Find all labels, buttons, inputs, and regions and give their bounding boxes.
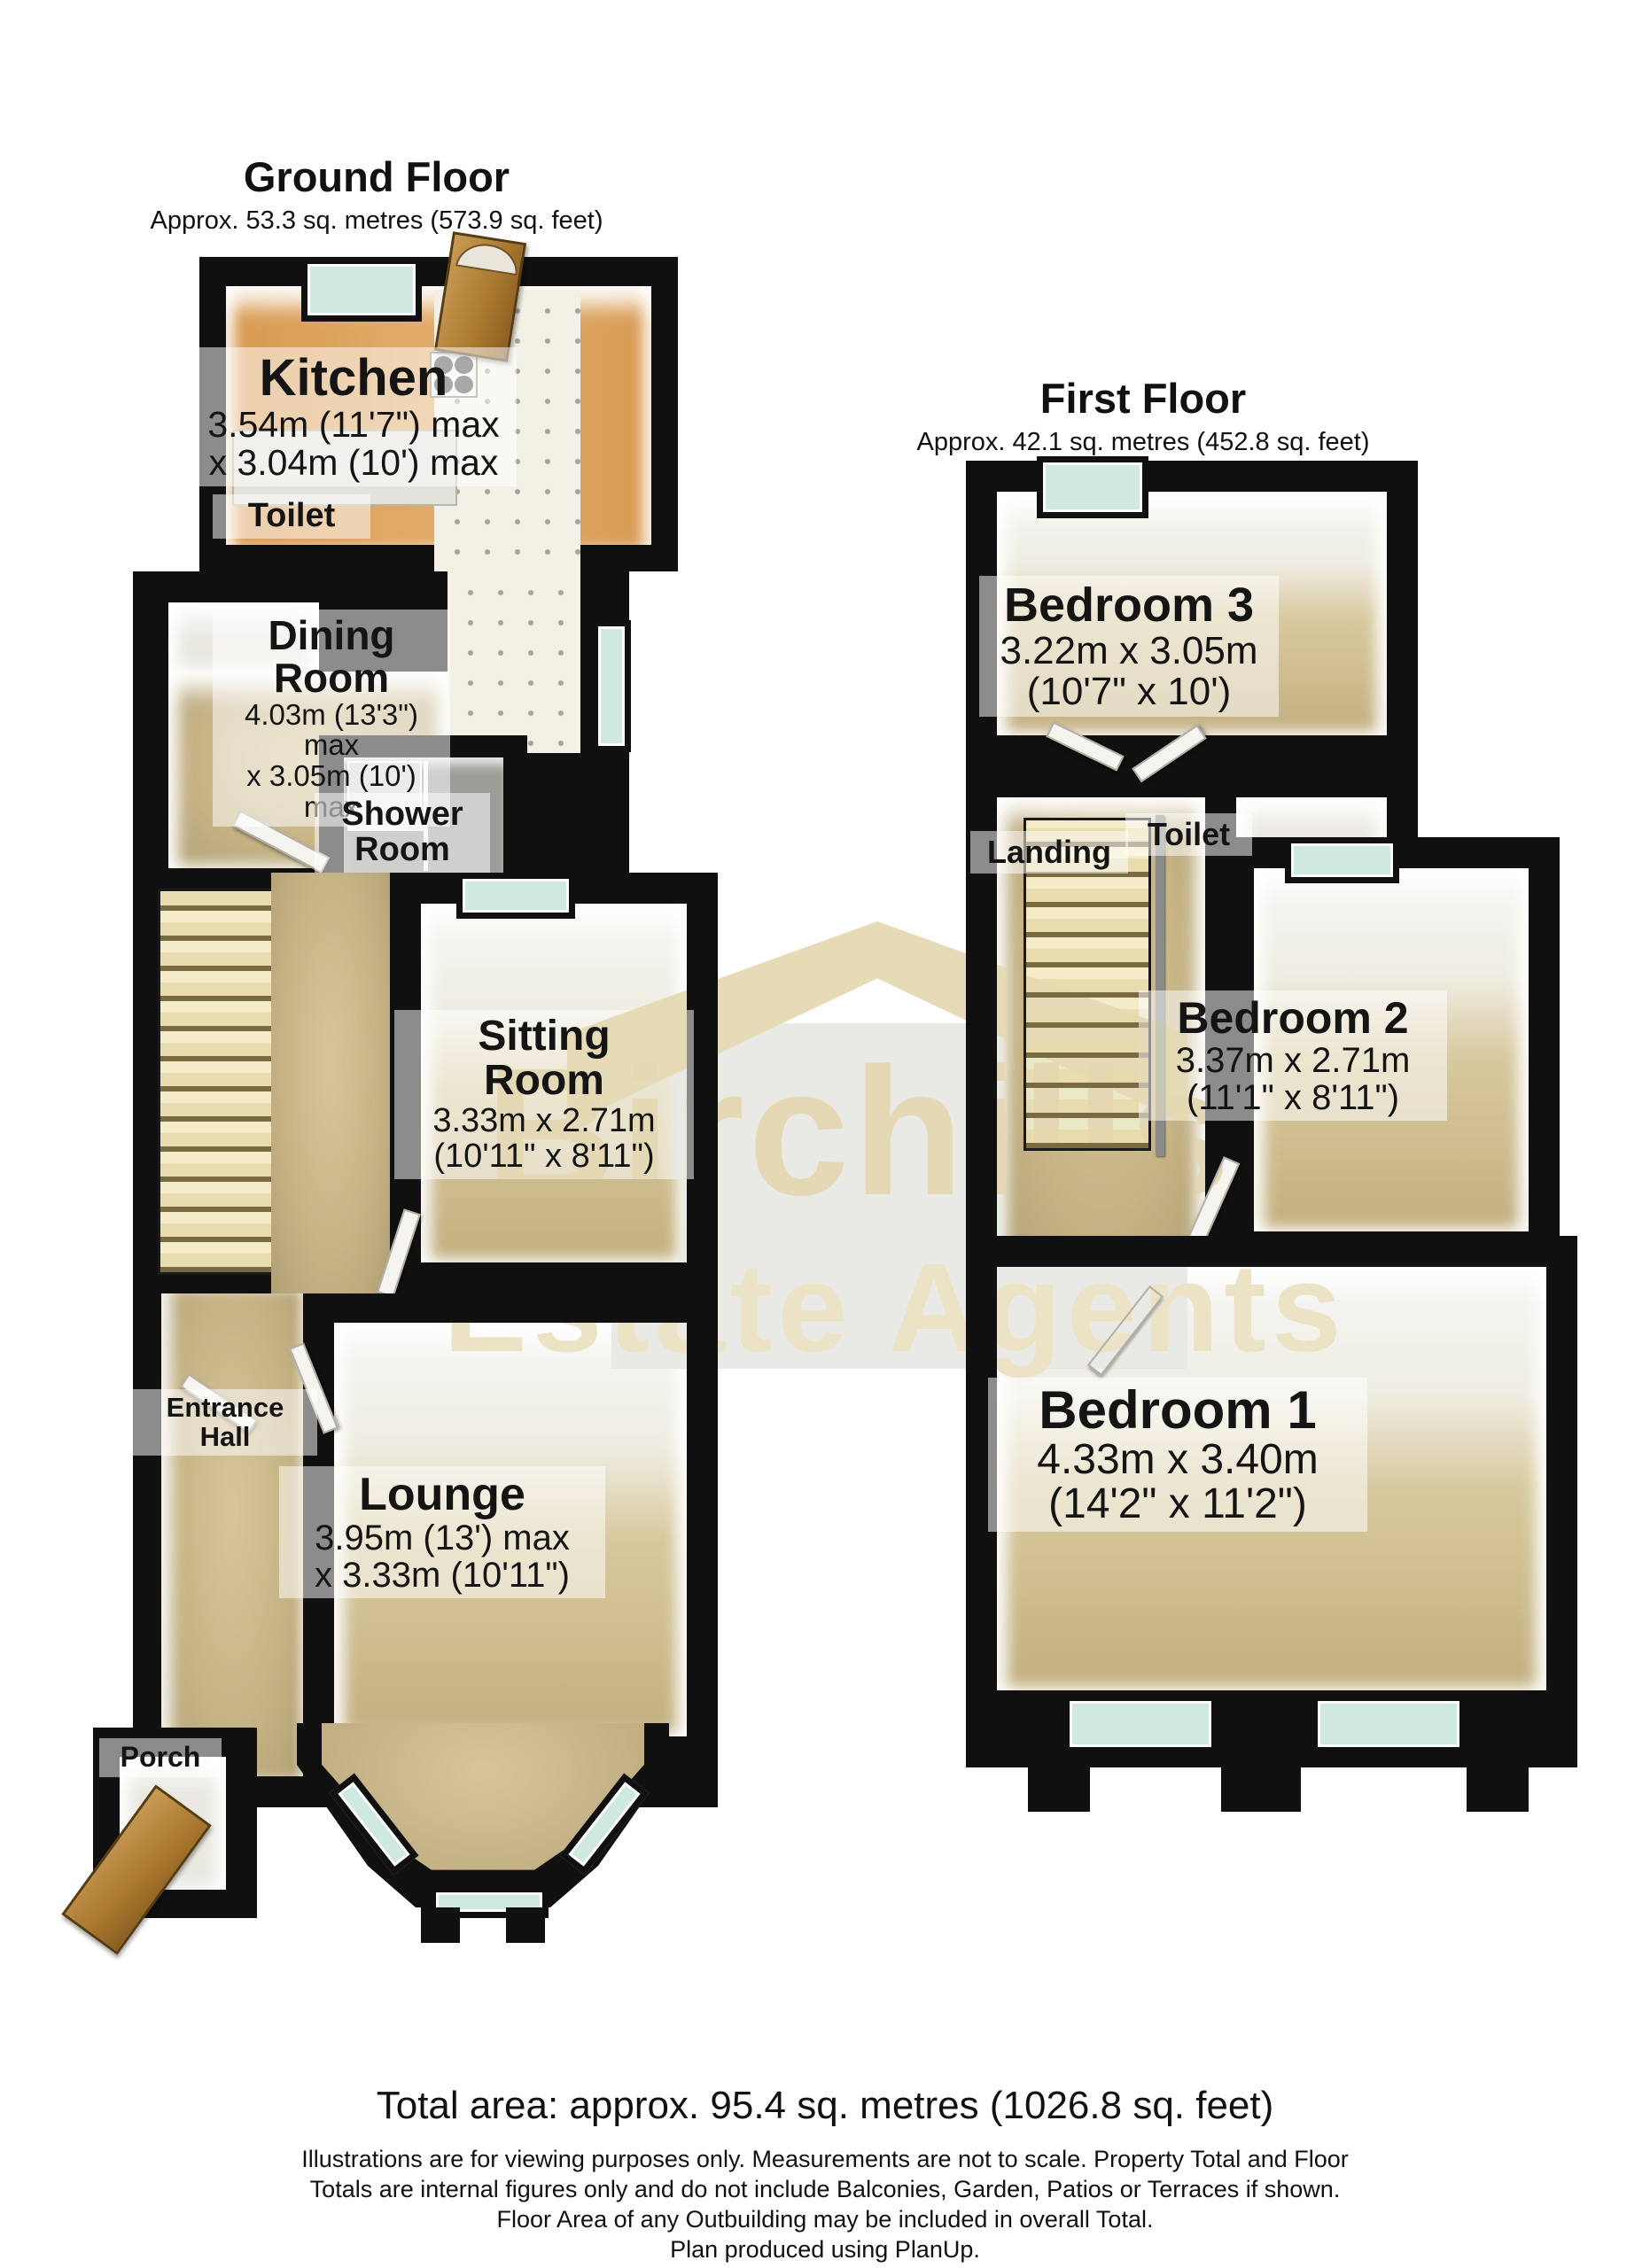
bay-frame-stub	[421, 1907, 460, 1943]
disclaimer-line-4: Plan produced using PlanUp.	[205, 2234, 1445, 2264]
disclaimer-text: Illustrations are for viewing purposes o…	[205, 2144, 1445, 2264]
bedroom2-dim1: 3.37m x 2.71m	[1142, 1042, 1444, 1079]
ground-floor-title: Ground Floor	[66, 152, 687, 201]
kitchen-window	[301, 258, 422, 322]
bedroom3-dim1: 3.22m x 3.05m	[983, 631, 1275, 672]
window-frame-stub	[1467, 1767, 1529, 1812]
hallway-floor	[271, 873, 390, 1298]
bedroom2-label: Bedroom 2 3.37m x 2.71m (11'1" x 8'11")	[1139, 990, 1447, 1121]
bedroom1-dim2: (14'2" x 11'2")	[992, 1482, 1364, 1526]
bay-window	[297, 1723, 669, 1953]
porch-name: Porch	[103, 1743, 218, 1773]
dining-tile-path	[448, 571, 580, 753]
porch-label: Porch	[99, 1738, 222, 1777]
entrance-hall-label: Entrance Hall	[133, 1389, 317, 1456]
staircase	[158, 889, 276, 1275]
disclaimer-line-3: Floor Area of any Outbuilding may be inc…	[205, 2204, 1445, 2234]
toilet-label: Toilet	[213, 494, 370, 539]
bedroom3-name: Bedroom 3	[983, 580, 1275, 631]
lounge-dim2: x 3.33m (10'11")	[283, 1557, 602, 1594]
first-floor-subtitle: Approx. 42.1 sq. metres (452.8 sq. feet)	[833, 428, 1453, 457]
sitting-name-2: Room	[398, 1059, 690, 1103]
sitting-room-label: Sitting Room 3.33m x 2.71m (10'11" x 8'1…	[394, 1010, 694, 1179]
sitting-name-1: Sitting	[398, 1014, 690, 1059]
dining-name-2: Room	[216, 656, 447, 699]
kitchen-name: Kitchen	[194, 352, 513, 406]
shower-room-label: Shower Room	[315, 793, 490, 873]
sitting-room-window	[456, 873, 575, 919]
bedroom1-name: Bedroom 1	[992, 1382, 1364, 1438]
first-floor-title: First Floor	[833, 374, 1453, 423]
bedroom1-label: Bedroom 1 4.33m x 3.40m (14'2" x 11'2")	[988, 1378, 1367, 1532]
floorplan-page: Ground Floor Approx. 53.3 sq. metres (57…	[0, 0, 1650, 2268]
sitting-dim2: (10'11" x 8'11")	[398, 1139, 690, 1175]
kitchen-dim2: x 3.04m (10') max	[194, 444, 513, 482]
bedroom3-window	[1037, 456, 1148, 518]
ground-floor-subtitle: Approx. 53.3 sq. metres (573.9 sq. feet)	[66, 206, 687, 236]
shower-name-2: Room	[318, 833, 486, 868]
window-frame-stub	[1221, 1767, 1301, 1812]
lounge-dim1: 3.95m (13') max	[283, 1519, 602, 1557]
dining-name-1: Dining	[216, 614, 447, 656]
landing-name: Landing	[974, 835, 1125, 869]
dining-glass-door	[592, 620, 631, 752]
lounge-name: Lounge	[283, 1471, 602, 1519]
bedroom1-dim1: 4.33m x 3.40m	[992, 1438, 1364, 1482]
shower-name-1: Shower	[318, 797, 486, 833]
bedroom1-window-right	[1311, 1695, 1466, 1753]
fanlight	[455, 240, 520, 276]
first-floor-header: First Floor Approx. 42.1 sq. metres (452…	[833, 374, 1453, 457]
bedroom2-name: Bedroom 2	[1142, 995, 1444, 1042]
dining-dim1: 4.03m (13'3") max	[216, 700, 447, 761]
toilet-ff-label: Toilet	[1125, 813, 1252, 856]
kitchen-label: Kitchen 3.54m (11'7") max x 3.04m (10') …	[191, 347, 517, 486]
bedroom1-window-left	[1063, 1695, 1218, 1753]
bedroom2-window	[1285, 837, 1399, 883]
disclaimer-line-1: Illustrations are for viewing purposes o…	[205, 2144, 1445, 2174]
toilet-ff-name: Toilet	[1129, 818, 1249, 851]
total-area-text: Total area: approx. 95.4 sq. metres (102…	[160, 2084, 1490, 2128]
disclaimer-line-2: Totals are internal figures only and do …	[205, 2174, 1445, 2204]
window-frame-stub	[1028, 1767, 1090, 1812]
ground-floor-header: Ground Floor Approx. 53.3 sq. metres (57…	[66, 152, 687, 236]
toilet-name: Toilet	[216, 499, 367, 534]
kitchen-dim1: 3.54m (11'7") max	[194, 406, 513, 444]
bedroom3-dim2: (10'7" x 10')	[983, 672, 1275, 712]
bay-frame-stub	[506, 1907, 545, 1943]
entrance-name-2: Hall	[136, 1423, 314, 1452]
bedroom2-dim2: (11'1" x 8'11")	[1142, 1079, 1444, 1116]
lounge-label: Lounge 3.95m (13') max x 3.33m (10'11")	[279, 1466, 605, 1598]
sitting-dim1: 3.33m x 2.71m	[398, 1104, 690, 1139]
entrance-name-1: Entrance	[136, 1394, 314, 1423]
bedroom3-label: Bedroom 3 3.22m x 3.05m (10'7" x 10')	[979, 576, 1279, 717]
landing-label: Landing	[970, 831, 1128, 874]
